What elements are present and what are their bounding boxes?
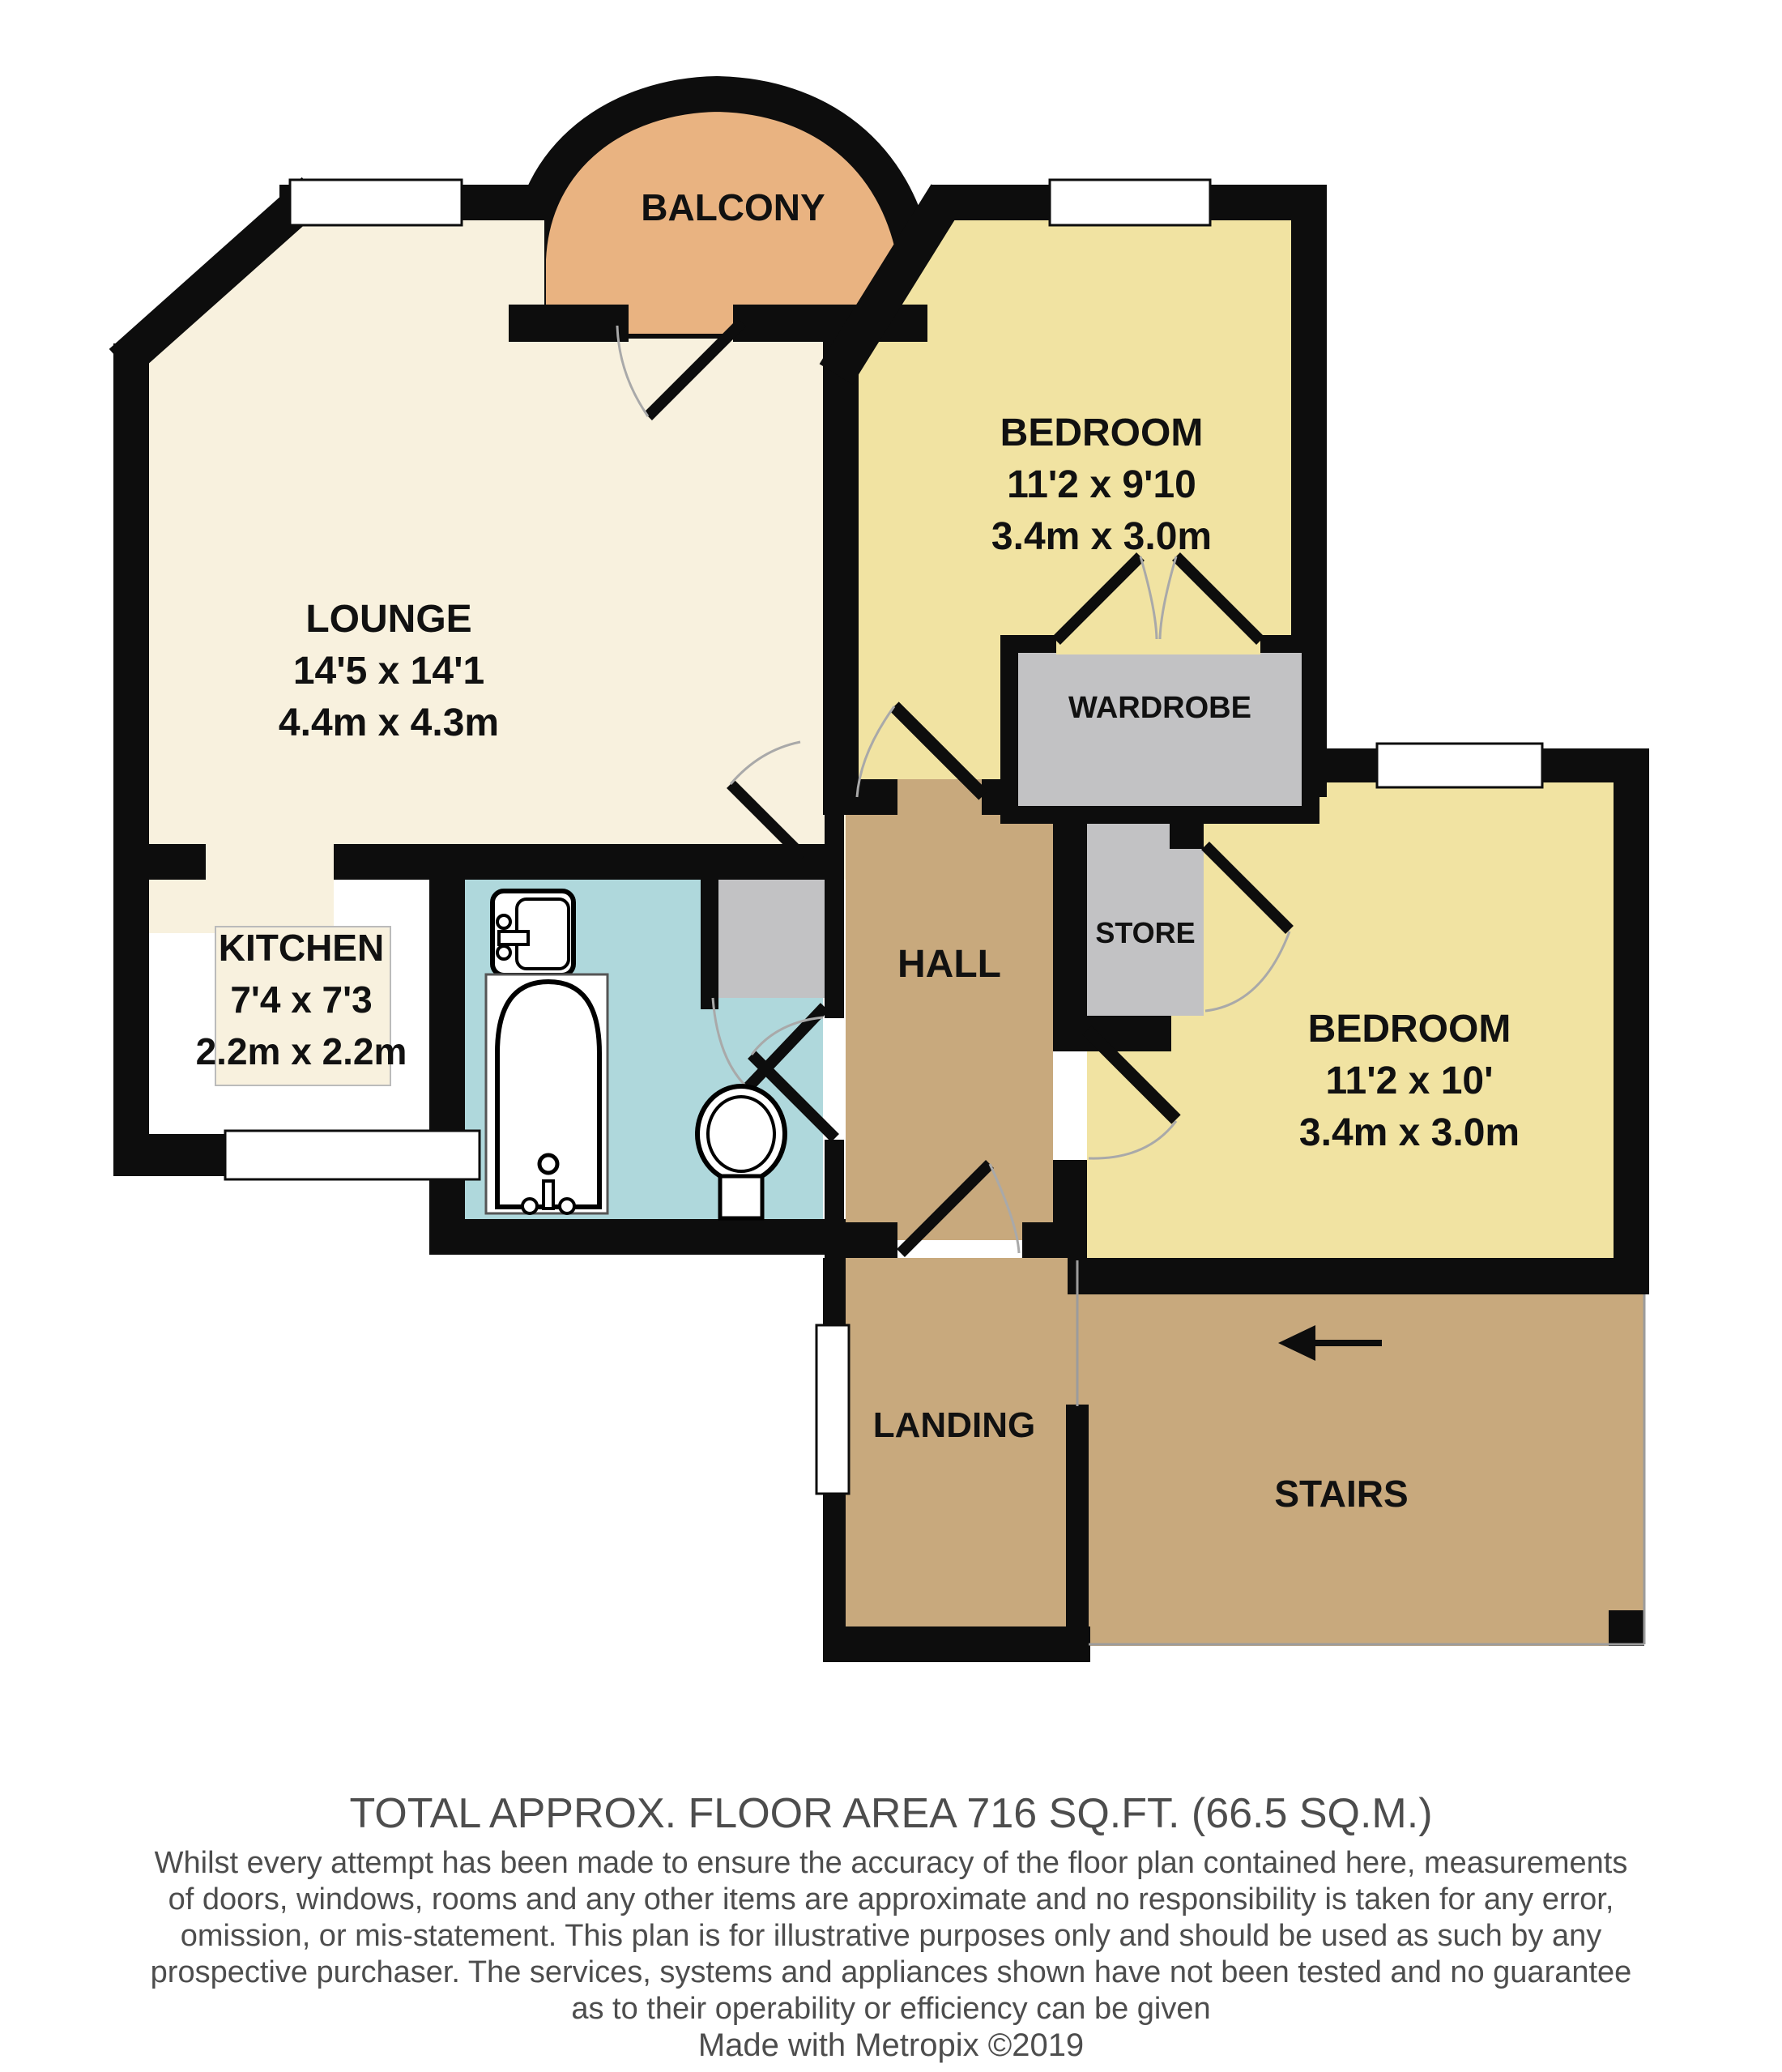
wall-landing-left-upper xyxy=(823,1258,846,1327)
stairs-label: STAIRS xyxy=(1274,1473,1408,1515)
footer: TOTAL APPROX. FLOOR AREA 716 SQ.FT. (66.… xyxy=(151,1790,1632,2063)
landing-label: LANDING xyxy=(873,1405,1035,1445)
wall-lounge-bedroom1 xyxy=(823,339,859,782)
wall-store-left xyxy=(1053,815,1087,1027)
wall-hall-top-a xyxy=(823,779,897,815)
hall-label: HALL xyxy=(897,943,1001,986)
store-label: STORE xyxy=(1095,916,1195,949)
lounge-dims-metric: 4.4m x 4.3m xyxy=(279,701,499,744)
bedroom1-dims-metric: 3.4m x 3.0m xyxy=(991,515,1212,558)
bathtub-icon xyxy=(486,974,607,1213)
wall-store-bottom xyxy=(1053,1016,1171,1051)
kitchen-dims-metric: 2.2m x 2.2m xyxy=(196,1030,407,1072)
wall-cupboard-left xyxy=(701,880,718,1009)
bedroom2-dims-imperial: 11'2 x 10' xyxy=(1325,1059,1493,1102)
bedroom1-label: BEDROOM xyxy=(1000,411,1204,454)
kitchen-label: KITCHEN xyxy=(219,927,384,969)
wall-bath-bottom xyxy=(429,1219,846,1255)
balcony-label: BALCONY xyxy=(641,186,825,228)
landing-window xyxy=(816,1325,849,1494)
disclaimer-line-3: omission, or mis-statement. This plan is… xyxy=(181,1919,1602,1953)
wall-hall-bottom-b xyxy=(1022,1222,1087,1258)
kitchen-window xyxy=(225,1131,480,1179)
wall-lounge-bottom-b xyxy=(334,844,826,880)
disclaimer-line-1: Whilst every attempt has been made to en… xyxy=(155,1846,1628,1880)
disclaimer-line-5: as to their operability or efficiency ca… xyxy=(571,1992,1210,2026)
wall-balcony-bottom-left xyxy=(509,305,629,342)
floor-plan-canvas: BALCONY LOUNGE 14'5 x 14'1 4.4m x 4.3m B… xyxy=(0,0,1782,2072)
metropix-credit: Made with Metropix ©2019 xyxy=(698,2027,1084,2063)
wall-exterior-left xyxy=(113,343,149,1176)
sink-icon xyxy=(492,891,573,975)
bedroom2-dims-metric: 3.4m x 3.0m xyxy=(1299,1111,1520,1154)
disclaimer-line-2: of doors, windows, rooms and any other i… xyxy=(168,1882,1614,1916)
stairs-corner-post xyxy=(1609,1610,1644,1646)
wall-lounge-bottom-a xyxy=(113,844,206,880)
wall-bedroom2-bottom xyxy=(1068,1258,1649,1294)
disclaimer-line-4: prospective purchaser. The services, sys… xyxy=(151,1955,1632,1989)
bedroom1-dims-imperial: 11'2 x 9'10 xyxy=(1007,463,1196,506)
lounge-dims-imperial: 14'5 x 14'1 xyxy=(293,650,484,693)
wardrobe-label: WARDROBE xyxy=(1068,691,1251,725)
kitchen-cream-patch xyxy=(149,880,334,933)
bedroom2-window xyxy=(1377,744,1542,787)
wall-landing-stairs-divider xyxy=(1066,1405,1089,1646)
wall-hall-bottom-a xyxy=(825,1222,897,1258)
lounge-window xyxy=(290,180,462,225)
floor-plan-page: BALCONY LOUNGE 14'5 x 14'1 4.4m x 4.3m B… xyxy=(0,0,1782,2072)
bedroom1-window xyxy=(1050,180,1210,225)
stairs-floor xyxy=(1077,1294,1644,1646)
wardrobe-box xyxy=(1009,644,1311,815)
wall-hall-left-upper xyxy=(825,815,844,1018)
kitchen-dims-imperial: 7'4 x 7'3 xyxy=(230,978,372,1021)
lounge-label: LOUNGE xyxy=(305,598,471,641)
bathroom-cupboard xyxy=(718,880,825,998)
wardrobe-unit xyxy=(1009,635,1311,815)
wardrobe-opening-cover xyxy=(1056,635,1260,654)
wall-landing-bottom xyxy=(823,1626,1090,1662)
wall-bedroom2-right xyxy=(1614,748,1649,1294)
kitchen-opening-patch xyxy=(206,844,334,880)
hall-floor xyxy=(846,779,1053,1240)
total-floor-area: TOTAL APPROX. FLOOR AREA 716 SQ.FT. (66.… xyxy=(349,1790,1432,1837)
wall-kitchen-bath-divider xyxy=(429,844,465,1176)
bedroom2-label: BEDROOM xyxy=(1308,1008,1511,1051)
kitchen-label-group: KITCHEN 7'4 x 7'3 2.2m x 2.2m xyxy=(196,927,407,1085)
